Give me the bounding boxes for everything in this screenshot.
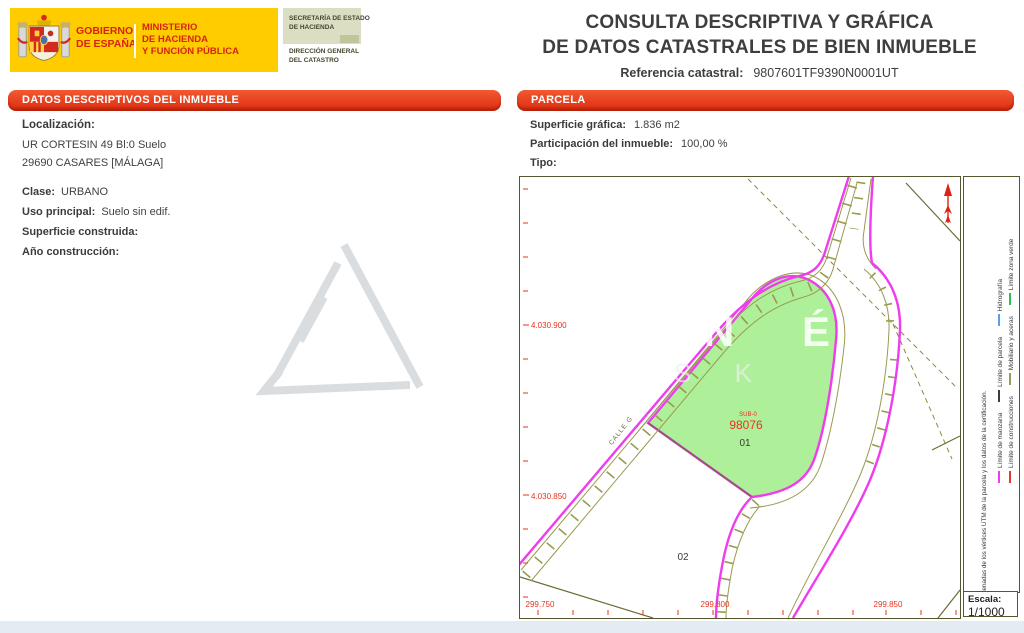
scale-box: Escala: 1/1000 [963, 591, 1018, 617]
direccion-catastro-label: DIRECCIÓN GENERAL DEL CATASTRO [289, 47, 359, 65]
spain-coat-of-arms [16, 12, 72, 68]
legend-label-zona-verde: Límite zona verde [1008, 239, 1015, 291]
superficie-construida-label: Superficie construida: [22, 226, 138, 238]
watermark-text-2: S K [674, 358, 770, 389]
electronic-document-note: Este documento electrónico contiene anex… [981, 391, 988, 593]
page-footer-strip [0, 621, 1024, 633]
anio-construccion-label: Año construcción: [22, 246, 119, 258]
watermark-text-1: N É [704, 308, 858, 356]
legend-label-hidrografia: Hidrografía [997, 279, 1004, 311]
superficie-grafica-label: Superficie gráfica: [530, 119, 626, 131]
header-divider [134, 24, 136, 58]
secretaria-tab [340, 35, 359, 43]
localizacion-label: Localización: [22, 119, 492, 131]
y-coordinate-label-south: 4.030.850 [531, 492, 567, 501]
legend-label-mobiliario: Mobiliario y aceras [1008, 316, 1015, 370]
legend-swatch-manzana [998, 471, 1000, 483]
uso-label: Uso principal: [22, 206, 95, 218]
localizacion-line1: UR CORTESIN 49 Bl:0 Suelo [22, 136, 492, 154]
referencia-label: Referencia catastral: [620, 66, 743, 80]
participacion-value: 100,00 % [681, 138, 727, 150]
legend-label-parcela: Límite de parcela [997, 337, 1004, 387]
neighbor-parcel-label: 02 [677, 552, 689, 563]
x-coordinate-label-west: 299.750 [526, 600, 555, 609]
section-header-datos-descriptivos: DATOS DESCRIPTIVOS DEL INMUEBLE [8, 90, 501, 111]
legend-swatch-mobiliario [1009, 373, 1011, 385]
legend-label-construcciones: Límite de construcciones [1008, 396, 1015, 468]
legend-swatch-zona-verde [1009, 293, 1011, 305]
title-line-1: CONSULTA DESCRIPTIVA Y GRÁFICA [502, 10, 1017, 35]
x-coordinate-label-east: 299.850 [874, 600, 903, 609]
legend-swatch-hidrografia [998, 314, 1000, 326]
referencia-catastral-row: Referencia catastral:9807601TF9390N0001U… [502, 66, 1017, 80]
scale-value: 1/1000 [968, 605, 1013, 619]
gobierno-header-box: GOBIERNO DE ESPAÑA MINISTERIO DE HACIEND… [10, 8, 278, 72]
section-header-parcela: PARCELA [517, 90, 1014, 111]
cadastral-document-page: GOBIERNO DE ESPAÑA MINISTERIO DE HACIEND… [0, 0, 1024, 633]
legend-items: Límite de manzana Límite de parcela Hidr… [995, 183, 1017, 483]
legend-swatch-parcela [998, 390, 1000, 402]
north-arrow-icon [944, 183, 952, 223]
y-coordinate-label-north: 4.030.900 [531, 321, 567, 330]
tipo-label: Tipo: [530, 157, 557, 169]
title-line-2: DE DATOS CATASTRALES DE BIEN INMUEBLE [502, 35, 1017, 60]
map-legend-column: Límite de manzana Límite de parcela Hidr… [963, 176, 1020, 593]
x-coordinate-label-center: 299.800 [701, 600, 730, 609]
legend-label-manzana: Límite de manzana [997, 413, 1004, 468]
scale-label: Escala: [968, 594, 1013, 605]
secretaria-label: SECRETARÍA DE ESTADO DE HACIENDA [289, 14, 370, 32]
superficie-grafica-value: 1.836 m2 [634, 119, 680, 131]
parcel-number-label: 01 [739, 438, 751, 449]
gobierno-label: GOBIERNO DE ESPAÑA [76, 25, 136, 51]
ministerio-label: MINISTERIO DE HACIENDA Y FUNCIÓN PÚBLICA [142, 22, 239, 58]
manzana-number-label: 98076 [729, 418, 763, 432]
clase-value: URBANO [61, 186, 108, 198]
watermark-triangle-logo [240, 235, 440, 405]
cadastral-map: 4.030.900 4.030.850 299.750 299.800 299.… [519, 176, 961, 619]
cadastral-map-drawing: 4.030.900 4.030.850 299.750 299.800 299.… [520, 177, 960, 618]
clase-label: Clase: [22, 186, 55, 198]
uso-value: Suelo sin edif. [101, 206, 170, 218]
legend-swatch-construcciones [1009, 471, 1011, 483]
street-name-label: CALLE G [608, 415, 635, 446]
parcela-panel: Superficie gráfica:1.836 m2 Participació… [530, 116, 990, 173]
referencia-value: 9807601TF9390N0001UT [753, 66, 898, 80]
localizacion-line2: 29690 CASARES [MÁLAGA] [22, 154, 492, 172]
document-title: CONSULTA DESCRIPTIVA Y GRÁFICA DE DATOS … [502, 10, 1017, 80]
participacion-label: Participación del inmueble: [530, 138, 673, 150]
